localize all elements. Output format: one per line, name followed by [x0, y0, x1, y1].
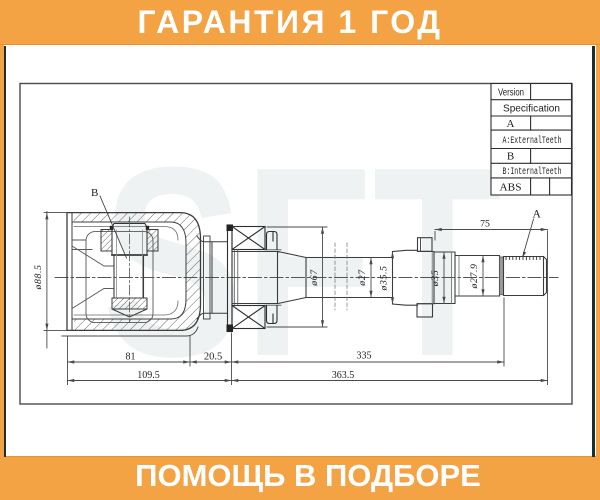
svg-text:109.5: 109.5: [137, 370, 160, 381]
svg-text:ø27: ø27: [357, 269, 368, 287]
svg-text:75: 75: [480, 219, 490, 230]
svg-text:ø67: ø67: [309, 269, 320, 287]
svg-text:81: 81: [126, 352, 136, 363]
svg-text:B: B: [91, 187, 98, 199]
svg-text:SFT: SFT: [102, 112, 502, 413]
svg-text:20.5: 20.5: [204, 352, 222, 363]
svg-text:ø88.5: ø88.5: [33, 264, 44, 290]
svg-text:ø35: ø35: [430, 270, 441, 288]
svg-text:A: A: [507, 118, 515, 130]
svg-text:335: 335: [357, 351, 372, 362]
svg-text:363.5: 363.5: [332, 370, 355, 381]
svg-text:A:ExternalTeeth: A:ExternalTeeth: [503, 135, 562, 147]
svg-text:Specification: Specification: [503, 104, 560, 115]
svg-text:ABS: ABS: [500, 183, 522, 194]
svg-text:B: B: [507, 151, 514, 163]
svg-text:B:InternalTeeth: B:InternalTeeth: [503, 166, 562, 178]
svg-text:Version: Version: [498, 87, 524, 99]
svg-text:ø27.9: ø27.9: [469, 263, 480, 289]
svg-text:ø35.5: ø35.5: [379, 265, 390, 291]
